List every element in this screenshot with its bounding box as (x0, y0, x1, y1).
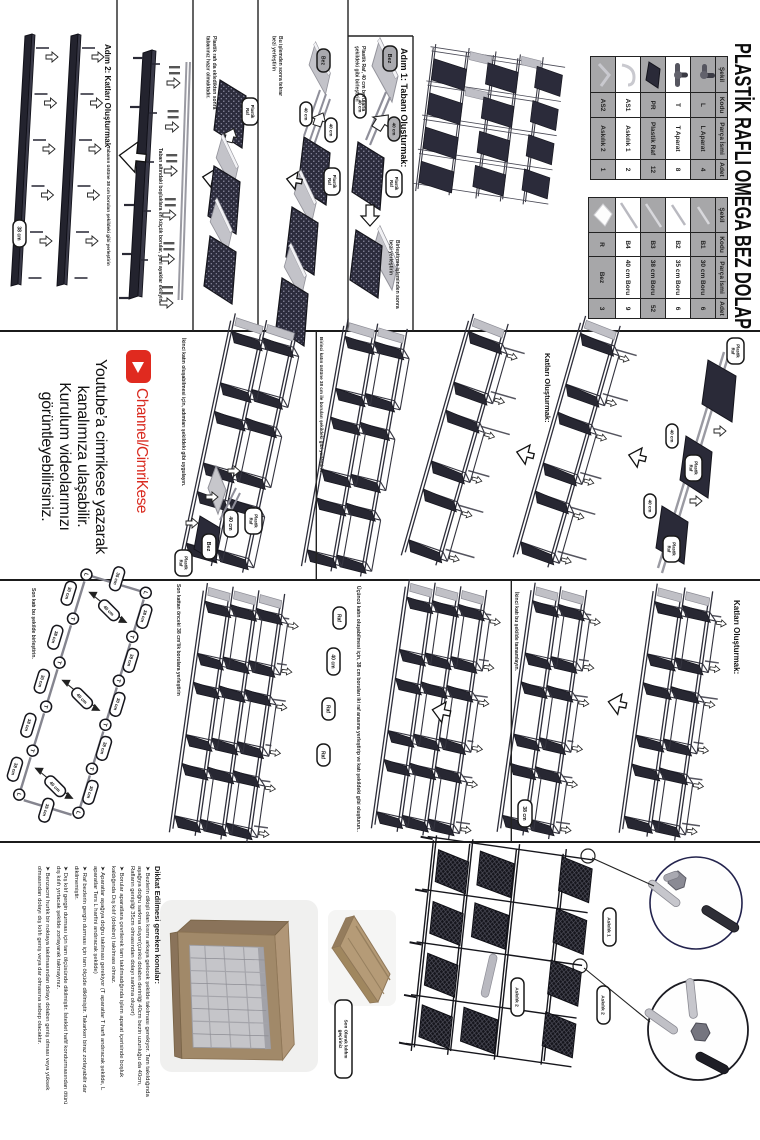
svg-text:Raf: Raf (336, 614, 342, 622)
svg-text:Bu işlemden sonra tekrar: Bu işlemden sonra tekrar (277, 36, 283, 96)
svg-text:Raf: Raf (327, 178, 332, 185)
svg-text:Birleştirme işleminden sonra: Birleştirme işleminden sonra (394, 240, 400, 309)
svg-text:Bez: Bez (386, 54, 392, 64)
svg-text:Katları Oluşturmak:: Katları Oluşturmak: (732, 600, 741, 674)
svg-text:Raf: Raf (325, 705, 331, 713)
svg-text:Bez: Bez (205, 542, 211, 552)
svg-text:Plastik rafı da ekledikten son: Plastik rafı da ekledikten sonra (211, 36, 217, 110)
svg-text:Taban altındaki boşluklara en: Taban altındaki boşluklara en küçük boru… (157, 148, 163, 304)
svg-text:bezi yerleştirin: bezi yerleştirin (271, 36, 277, 71)
svg-text:Raf: Raf (688, 465, 693, 472)
svg-text:bezi yerleştirin: bezi yerleştirin (388, 240, 394, 275)
svg-text:Son katı bu şekilde birleştiri: Son katı bu şekilde birleştirin. (30, 588, 36, 659)
svg-text:Raf: Raf (248, 518, 253, 525)
svg-text:Plastik Raf, 40 cm borularla: Plastik Raf, 40 cm borularla (360, 46, 366, 112)
svg-text:Raf: Raf (245, 108, 250, 115)
svg-text:40 cm: 40 cm (647, 500, 652, 513)
svg-text:Bez: Bez (320, 56, 326, 65)
svg-text:Son kattan önceki 38 cm'lik bo: Son kattan önceki 38 cm'lik borulara yer… (175, 584, 181, 696)
svg-text:Üçüncü katın oluşabilmesi için: Üçüncü katın oluşabilmesi için, 38 cm bo… (355, 586, 362, 833)
svg-text:40 cm: 40 cm (328, 124, 333, 137)
svg-text:Birinci katın üstüne 38 cm ile: Birinci katın üstüne 38 cm ile boruları … (319, 337, 324, 472)
svg-text:40 cm: 40 cm (330, 654, 336, 669)
svg-text:Askılık 2: Askılık 2 (514, 987, 520, 1007)
svg-text:40 cm: 40 cm (303, 108, 308, 121)
svg-text:Adım 1: Tabanı Oluşturmak:: Adım 1: Tabanı Oluşturmak: (399, 48, 409, 167)
svg-text:Raf: Raf (730, 348, 735, 355)
svg-text:Raf: Raf (320, 751, 326, 759)
svg-text:Askılık 2: Askılık 2 (600, 995, 606, 1015)
svg-text:geçiriniz: geçiriniz (338, 1030, 343, 1049)
svg-text:Askılık 1: Askılık 1 (606, 917, 612, 937)
svg-text:40 cm: 40 cm (669, 430, 674, 443)
svg-text:Raf: Raf (389, 180, 394, 187)
svg-text:Katları Oluşturmak:: Katları Oluşturmak: (543, 353, 552, 423)
svg-text:38 cm: 38 cm (521, 806, 527, 821)
svg-text:Son Olarak kılıfını: Son Olarak kılıfını (344, 1020, 349, 1059)
svg-text:Tabanın üstüne 38 cm boruları: Tabanın üstüne 38 cm boruları şekildeki … (106, 146, 111, 266)
svg-text:tabanınız hazır olmaktadır.: tabanınız hazır olmaktadır. (205, 36, 211, 99)
svg-text:40 cm: 40 cm (391, 123, 396, 136)
svg-text:Raf: Raf (666, 546, 671, 553)
svg-text:Adım 2: Katları Oluşturmak: Adım 2: Katları Oluşturmak (103, 44, 112, 148)
svg-text:şekildeki gibi birleştirin: şekildeki gibi birleştirin (354, 46, 360, 102)
svg-text:38 cm: 38 cm (16, 226, 22, 241)
svg-text:Raf: Raf (178, 560, 183, 567)
svg-text:İkinci katı bu şekilde tamamla: İkinci katı bu şekilde tamamlayın. (513, 592, 520, 672)
svg-text:İkinci katın oluşabilmesi için: İkinci katın oluşabilmesi için, adımları… (180, 338, 187, 487)
svg-text:40 cm: 40 cm (227, 516, 233, 531)
svg-text:PLASTİK RAFLI OMEGA BEZ DOLAP: PLASTİK RAFLI OMEGA BEZ DOLAP (730, 43, 756, 329)
